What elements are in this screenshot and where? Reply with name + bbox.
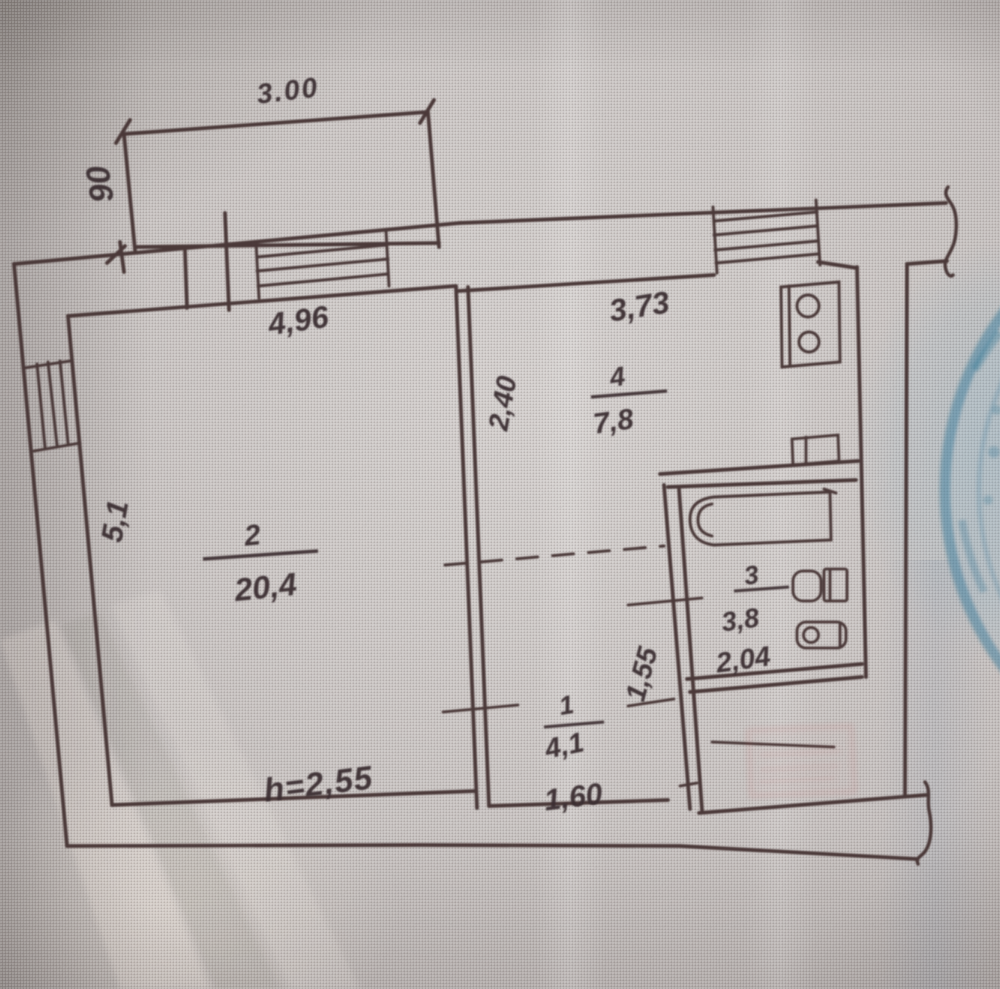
svg-text:2: 2: [242, 519, 262, 553]
svg-text:90: 90: [78, 163, 120, 206]
svg-text:7,8: 7,8: [591, 403, 636, 440]
svg-text:20,4: 20,4: [232, 566, 299, 608]
svg-text:3,8: 3,8: [720, 603, 761, 638]
